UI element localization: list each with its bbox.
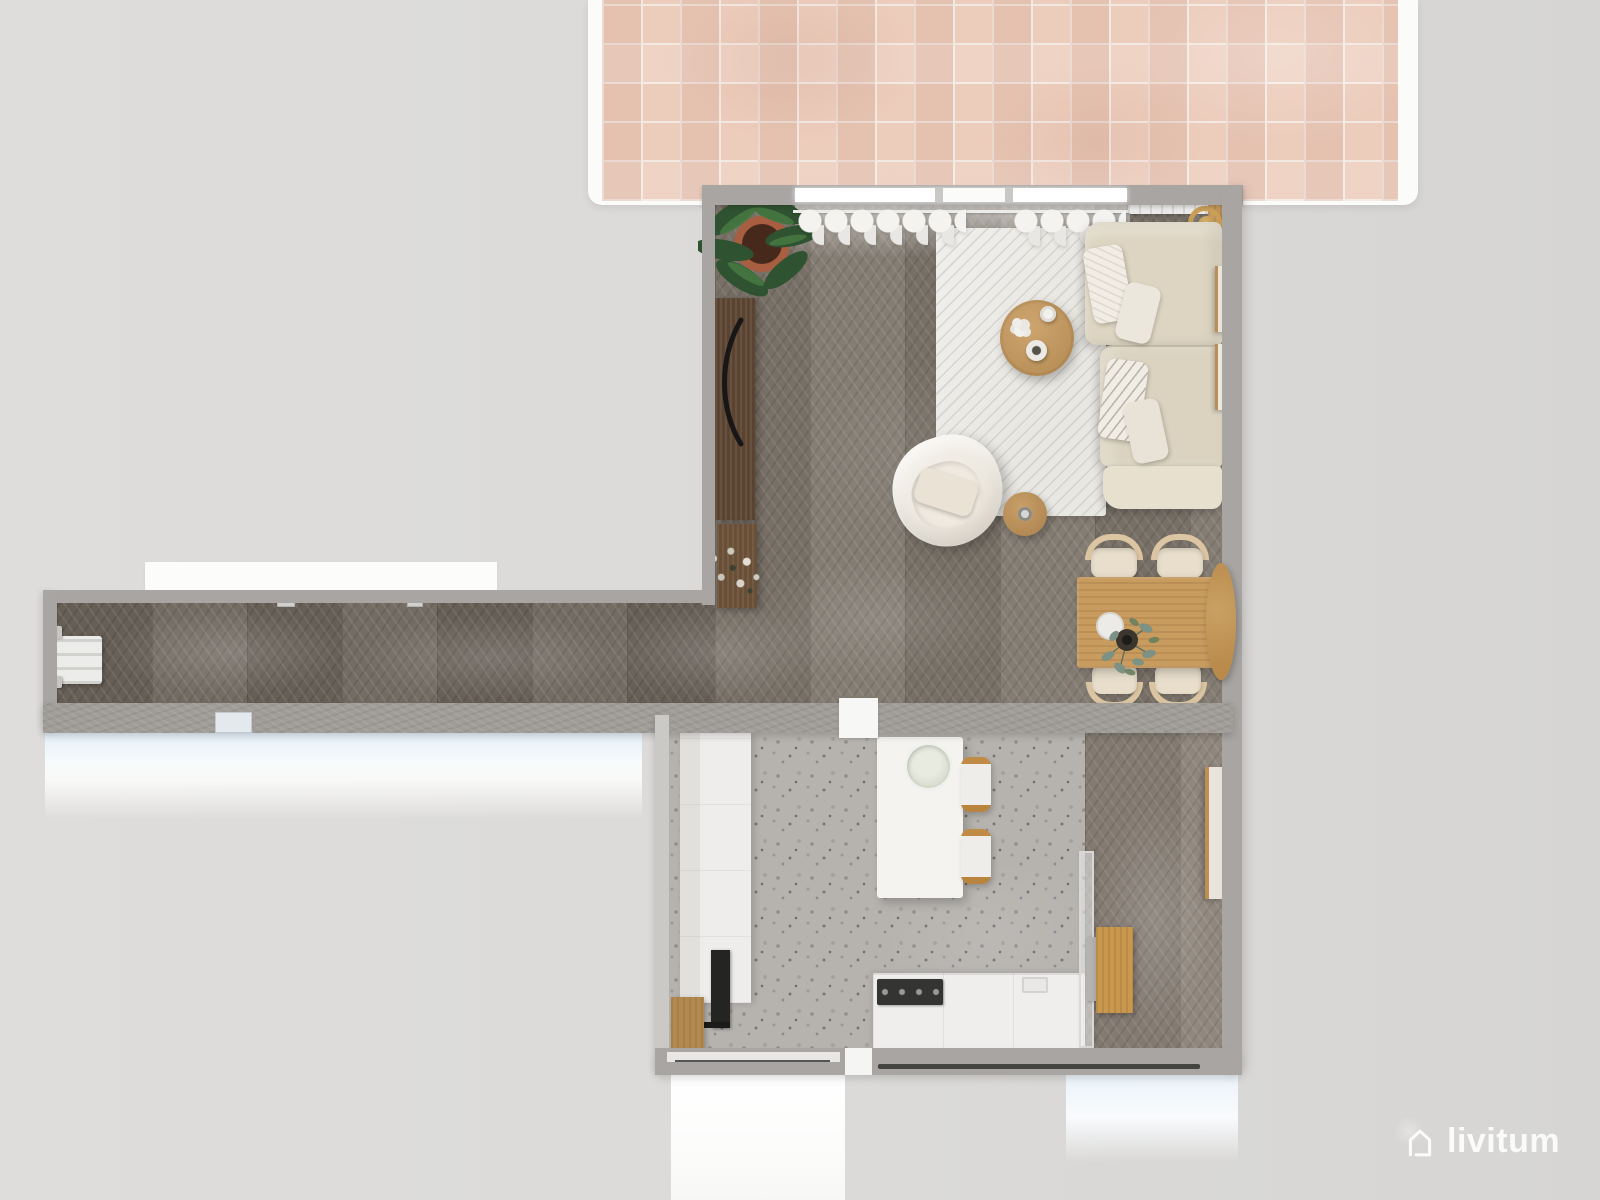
living-room-left-wall xyxy=(702,185,715,605)
bottom-wall-sill-line xyxy=(675,1060,830,1062)
centerpiece-plant xyxy=(1094,610,1168,682)
counter-sink xyxy=(1022,977,1048,993)
sofa-armrest xyxy=(1103,465,1222,509)
oven-handle xyxy=(702,1022,730,1028)
white-slab-above-hallway xyxy=(145,562,497,590)
bottom-door-opening xyxy=(845,1048,872,1075)
bottom-window-slit xyxy=(878,1064,1200,1069)
balcony-glow-bottom-right xyxy=(1066,1072,1238,1162)
balcony-glow-below-hallway xyxy=(45,733,642,819)
lens-flare xyxy=(1394,1116,1424,1146)
logo-text: livitum xyxy=(1447,1122,1560,1161)
vase-decor xyxy=(1026,340,1047,361)
wood-plank xyxy=(1096,927,1133,1013)
hallway-floor xyxy=(57,603,715,705)
kitchen-left-wall xyxy=(655,715,669,1075)
cooktop xyxy=(877,979,943,1005)
watermark-logo: livitum xyxy=(1402,1122,1560,1161)
dining-chair xyxy=(1151,534,1209,582)
bar-stool xyxy=(961,757,991,812)
kitchen-door-opening xyxy=(839,698,878,738)
sink-bowl xyxy=(907,745,950,788)
hallway-radiator xyxy=(56,636,102,684)
curtain-left xyxy=(798,206,966,254)
window-strip xyxy=(795,188,1127,202)
dining-chair xyxy=(1085,534,1143,582)
balcony-door-opening xyxy=(215,712,252,733)
hallway-top-wall xyxy=(43,590,715,603)
dining-table-round-end xyxy=(1206,563,1236,680)
cabinet-decor-arc xyxy=(710,315,750,449)
leaning-mirror xyxy=(1205,767,1223,899)
terrace-tiles xyxy=(602,0,1398,201)
cup-decor xyxy=(1040,306,1056,322)
candle-decor xyxy=(1018,507,1032,521)
bar-stool xyxy=(961,829,991,884)
oven xyxy=(711,950,730,1028)
wood-board xyxy=(671,997,704,1052)
round-coffee-table xyxy=(1000,300,1074,376)
white-slab-below-kitchen xyxy=(671,1070,845,1200)
floorplan-render: livitum xyxy=(0,0,1600,1200)
coral-decor xyxy=(1012,318,1022,328)
